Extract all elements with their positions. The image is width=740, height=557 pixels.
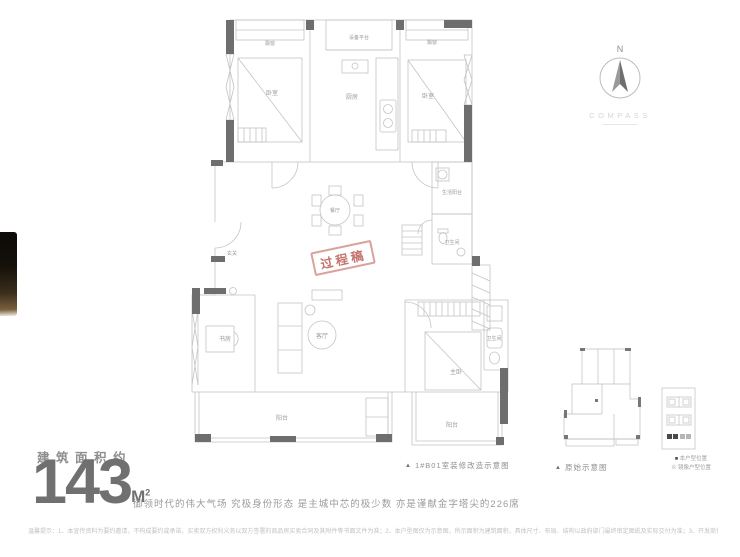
- compass: N COMPASS: [586, 44, 654, 125]
- compass-caption: COMPASS: [586, 111, 654, 120]
- area-number-value: 143: [32, 454, 131, 512]
- balcony-main-shape: [195, 392, 392, 442]
- label-balcony: 阳台: [276, 414, 288, 422]
- kitchen-fixtures: [342, 58, 398, 150]
- master-furniture: [418, 300, 508, 390]
- bedroom-left-furniture: [238, 58, 302, 142]
- label-bathroom: 卫生间: [444, 239, 459, 246]
- window-right: [464, 55, 472, 105]
- mini-plan-caption-text: 原始示意图: [565, 462, 608, 473]
- legend-current-label: 本户型位置: [680, 456, 708, 462]
- label-bedroom-left: 卧室: [266, 89, 278, 97]
- bedroom-doors: [272, 162, 438, 188]
- floor-plan-drawing: 飘窗 设备平台 飘窗 卧室 厨房 卧室 餐厅 玄关 生活阳台 卫生间 书房 客厅…: [180, 10, 525, 460]
- main-plan-caption: ▲ 1#B01室装修改造示意图: [405, 460, 510, 471]
- stack-legend: ■ 本户型位置 ※ 镜像户型位置: [648, 455, 734, 473]
- legend-current-unit: ■ 本户型位置: [648, 455, 734, 464]
- living-furniture: [278, 290, 342, 373]
- disclaimer-text: 温馨提示：1、本宣传资料为要约邀请，不构成要约或承诺，买卖双方权利义务以双方签署…: [28, 526, 718, 535]
- bottom-block: [192, 295, 508, 392]
- compass-underline: [602, 124, 638, 125]
- label-master-bedroom: 主卧: [450, 368, 462, 376]
- compass-north-label: N: [586, 44, 654, 54]
- main-plan-caption-text: 1#B01室装修改造示意图: [415, 460, 510, 471]
- label-service-balcony: 生活阳台: [442, 189, 462, 196]
- balcony-side-shape: [412, 392, 502, 445]
- structural-walls: [192, 20, 508, 445]
- label-bedroom-right: 卧室: [422, 92, 434, 100]
- building-stack-diagram: [660, 386, 698, 452]
- compass-needle-icon: [588, 54, 652, 102]
- label-side-balcony: 阳台: [446, 421, 458, 429]
- bedroom-right-furniture: [408, 60, 466, 142]
- marketing-tagline: 御领时代的伟大气场 究极身份形态 是主城中芯的极少数 亦是谨献金字塔尖的226席: [133, 496, 520, 510]
- label-bay-window-right: 飘窗: [427, 39, 437, 46]
- triangle-icon: ▲: [405, 463, 412, 469]
- label-bay-window-left: 飘窗: [265, 40, 275, 47]
- triangle-icon: ▲: [555, 465, 562, 471]
- label-living: 客厅: [316, 332, 328, 340]
- mirror-marker-icon: ※: [671, 465, 677, 471]
- legend-mirror-label: 镜像户型位置: [678, 465, 711, 471]
- floorplan-page: 飘窗 设备平台 飘窗 卧室 厨房 卧室 餐厅 玄关 生活阳台 卫生间 书房 客厅…: [0, 0, 740, 557]
- label-dining: 餐厅: [330, 207, 340, 214]
- filled-square-icon: ■: [675, 456, 678, 462]
- previous-photo-edge[interactable]: [0, 232, 17, 316]
- mini-plan-drawing: [552, 344, 647, 454]
- mini-plan-caption: ▲ 原始示意图: [555, 462, 607, 473]
- label-kitchen: 厨房: [346, 93, 358, 101]
- legend-mirror-unit: ※ 镜像户型位置: [648, 464, 734, 473]
- label-foyer: 玄关: [227, 250, 237, 257]
- label-equipment-platform: 设备平台: [349, 34, 369, 41]
- label-master-bathroom: 卫生间: [486, 335, 501, 342]
- label-study: 书房: [219, 335, 231, 343]
